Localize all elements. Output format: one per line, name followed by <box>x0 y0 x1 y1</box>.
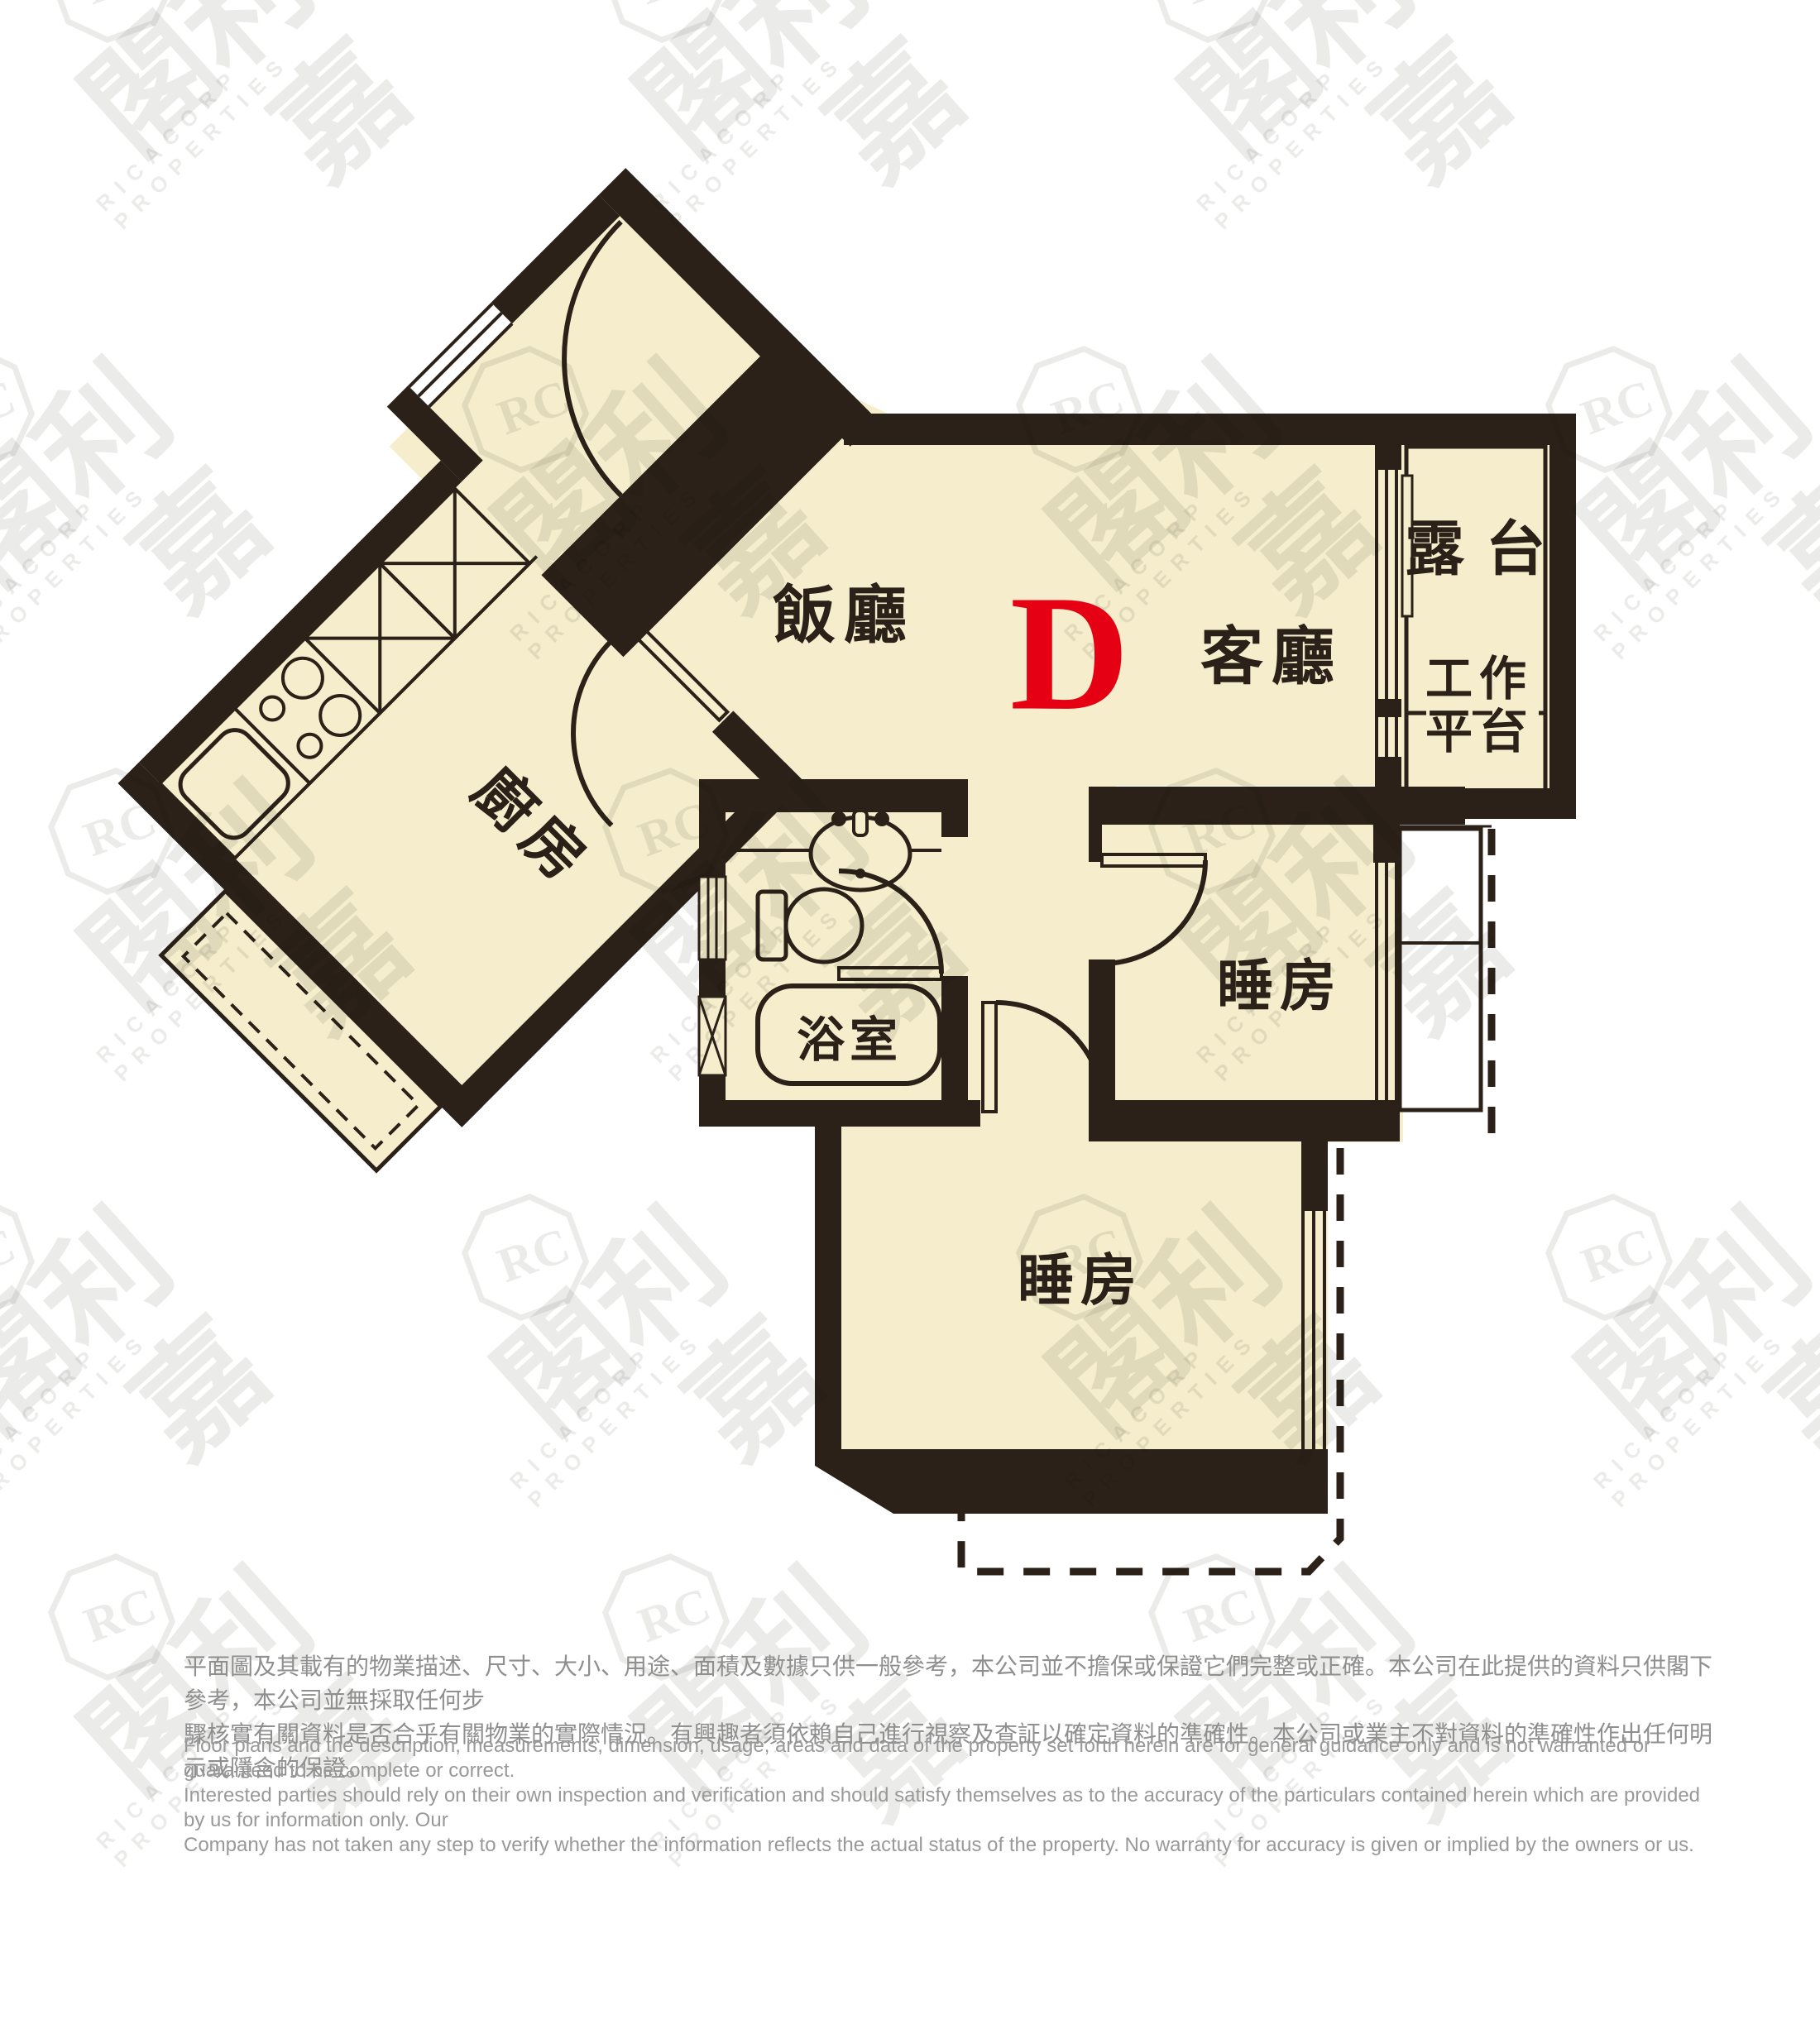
label-living-room: 客廳 <box>1200 605 1343 696</box>
label-bedroom-2: 睡房 <box>1018 1235 1143 1317</box>
disclaimer-english: Floor plans and the description, measure… <box>184 1734 1722 1858</box>
dining-bottom-wall <box>699 779 968 812</box>
label-utility-platform: 工作 平台 <box>1425 653 1533 759</box>
bathroom-door-leaf <box>839 968 941 979</box>
floorplan-page: { "unit": { "label": "D" }, "rooms": { "… <box>0 0 1820 1820</box>
bedroom2-left-wall <box>815 1107 841 1457</box>
label-balcony: 露台 <box>1405 500 1567 587</box>
toilet-bowl-icon <box>786 889 862 962</box>
label-unit-d: D <box>1010 559 1129 749</box>
top-wall <box>844 414 1576 445</box>
label-bedroom-1: 睡房 <box>1217 940 1343 1022</box>
bedroom2-bottom-wall <box>815 1449 1328 1514</box>
tap-icon <box>854 811 867 835</box>
toilet-tank-icon <box>758 892 786 959</box>
label-bathroom: 浴室 <box>797 1001 903 1070</box>
label-dining-room: 飯廳 <box>773 564 915 655</box>
floor-plan-svg <box>0 0 1820 1820</box>
bedroom1-bottom-wall <box>1089 1100 1400 1141</box>
bedroom2-door-leaf <box>983 1003 996 1112</box>
right-wall <box>1549 414 1576 819</box>
bedroom1-top-wall <box>1089 787 1465 825</box>
bedroom1-door-leaf <box>1102 854 1205 866</box>
bedroom1-bay-window <box>1400 829 1481 1110</box>
